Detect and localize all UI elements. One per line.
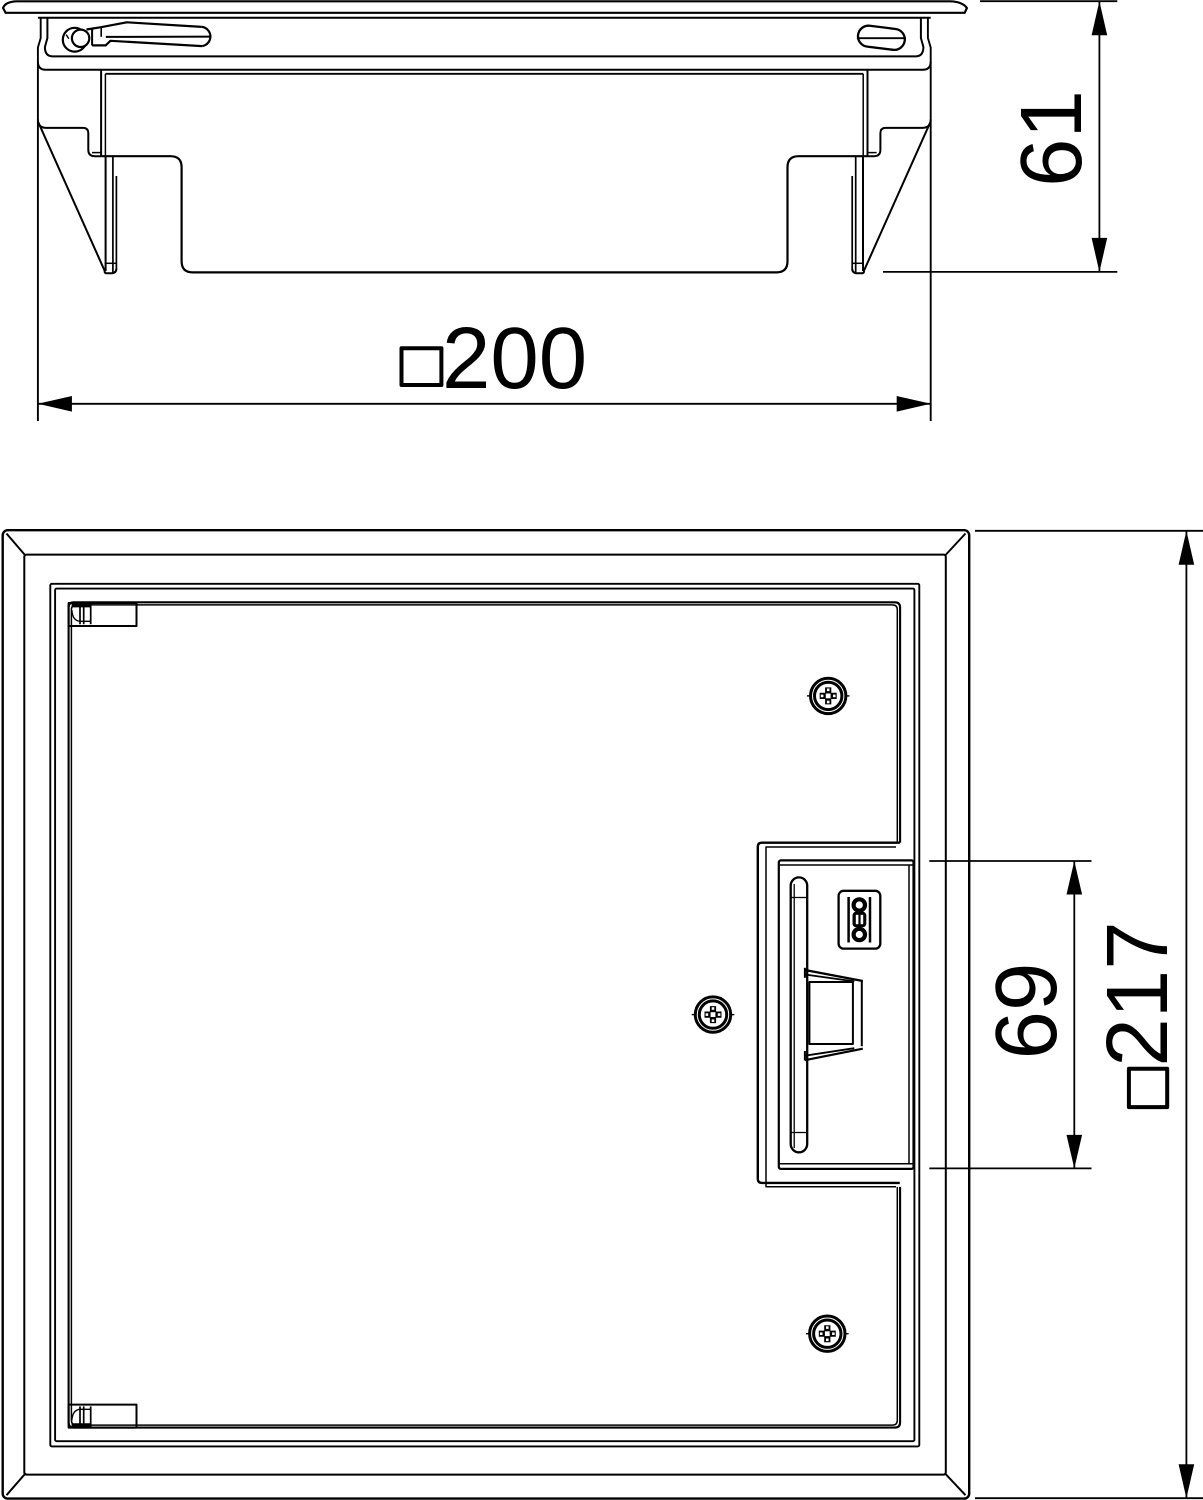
svg-text:61: 61 [1003, 90, 1100, 187]
svg-text:217: 217 [1089, 921, 1186, 1066]
svg-text:69: 69 [978, 963, 1075, 1060]
svg-text:200: 200 [442, 310, 587, 407]
